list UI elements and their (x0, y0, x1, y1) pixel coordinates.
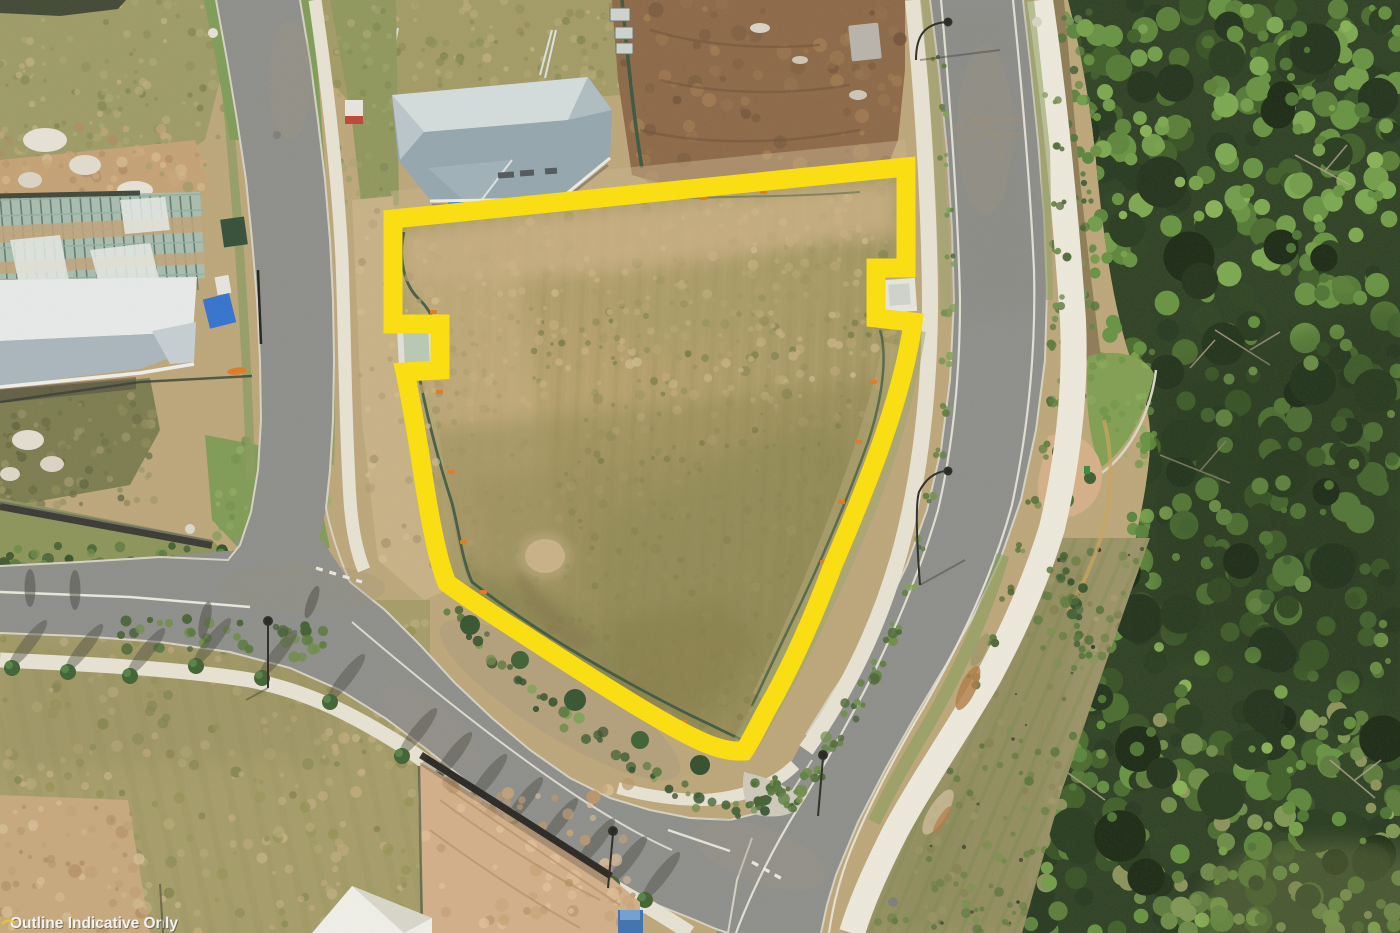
svg-text:Outline Indicative Only: Outline Indicative Only (10, 915, 178, 932)
